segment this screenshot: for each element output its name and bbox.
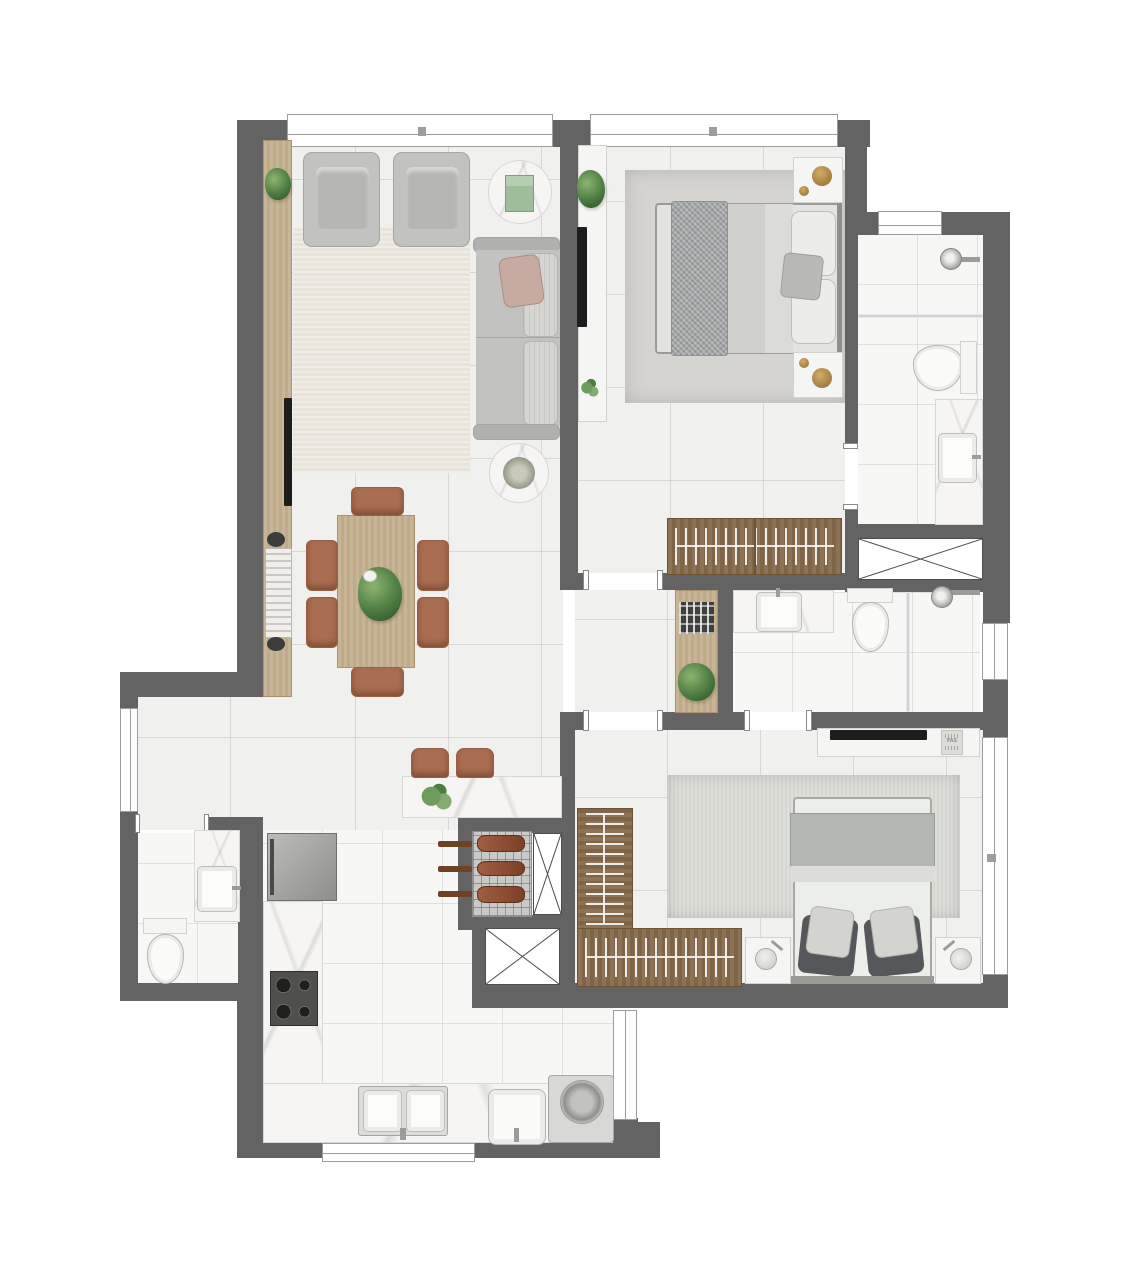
suite-bath-window (878, 211, 942, 235)
skewer-meat (477, 835, 525, 852)
plant (265, 168, 291, 200)
ventilation-shaft (858, 538, 983, 580)
living-rug (293, 228, 470, 473)
suite-door-jamb (583, 570, 589, 590)
green-book (505, 175, 534, 212)
counter-flowers (418, 781, 462, 815)
decor-bowl (267, 637, 285, 651)
shower-arm (950, 590, 980, 595)
armchair (393, 152, 470, 247)
book-stack (265, 548, 292, 638)
entry-floor (138, 697, 263, 830)
dining-chair (417, 540, 449, 591)
wall (472, 985, 575, 1008)
wall (983, 212, 1010, 623)
washbasin (197, 866, 237, 912)
sink-bowl (363, 1090, 402, 1132)
sideboard-decor-bar (284, 398, 292, 506)
suite-window (590, 114, 838, 147)
wall (560, 730, 575, 1008)
skewer-handle (438, 841, 472, 847)
skewer-meat (477, 886, 525, 903)
skewer-handle (438, 891, 472, 897)
suite-wardrobe (667, 518, 842, 575)
faucet (400, 1128, 406, 1140)
shower-head (940, 248, 962, 270)
living-window (287, 114, 553, 147)
skewer-meat (477, 861, 525, 876)
nightstand-decor (812, 368, 832, 388)
suite-bath-door-jamb (843, 443, 858, 449)
wall (238, 817, 263, 1001)
nightstand-decor (812, 166, 832, 186)
wall (845, 212, 878, 235)
plant (678, 663, 715, 701)
suite-bed-sheet (728, 204, 765, 353)
bedroom2-window (982, 737, 1008, 975)
nightstand-decor (799, 186, 809, 196)
plant (577, 170, 605, 208)
suite-bed-throw (671, 201, 728, 356)
bedroom2-blanket (790, 813, 935, 867)
sofa-armrest (473, 424, 560, 440)
wall (845, 507, 858, 580)
bathroom2-window (982, 623, 1008, 680)
floor-plan: FAS (0, 0, 1127, 1280)
dining-chair (417, 597, 449, 648)
dining-chair (351, 487, 404, 516)
ventilation-shaft (533, 833, 562, 915)
coffee-table (489, 443, 549, 503)
refrigerator (267, 833, 337, 901)
bedroom2-headboard (791, 976, 934, 984)
bedroom2-closet-horizontal (577, 928, 742, 987)
washbasin (756, 592, 802, 632)
dining-chair (306, 540, 338, 591)
bedroom2-sheet-fold (790, 866, 935, 882)
bar-stool (456, 748, 494, 778)
wall (845, 233, 858, 446)
sofa-back-cushion (523, 341, 558, 425)
shower-head (931, 586, 953, 608)
faucet (514, 1128, 519, 1142)
bedroom2-closet-vertical (577, 808, 633, 930)
wall (845, 120, 867, 215)
brand-stamp: FAS (941, 730, 963, 755)
sink-bowl (406, 1090, 445, 1132)
bedroom2-pillow-light (869, 905, 919, 959)
bedroom2-tv (830, 730, 927, 740)
panel-decor (580, 376, 603, 402)
wall (658, 573, 845, 590)
bathroom2-door-jamb (806, 710, 812, 731)
wall (120, 983, 240, 1001)
nightstand-decor (799, 358, 809, 368)
laundry-window (613, 1010, 637, 1120)
bedroom2-door-jamb (657, 710, 663, 731)
suite-shower-glass (858, 314, 983, 318)
dining-chair (351, 667, 404, 697)
bedroom2-door-jamb (583, 710, 589, 731)
toilet-tank (143, 918, 187, 934)
washing-machine (548, 1075, 614, 1143)
wall (458, 818, 472, 930)
powder-door-jamb (135, 814, 140, 833)
skewer-handle (438, 866, 472, 872)
kitchen-window (322, 1143, 475, 1162)
wall (718, 590, 733, 730)
bar-stool (411, 748, 449, 778)
wall (120, 833, 138, 983)
brand-stamp-text: FAS (947, 738, 957, 744)
armchair (303, 152, 380, 247)
centerpiece-bowl (363, 570, 377, 582)
toilet-tank (960, 341, 977, 394)
bathroom2-shower-glass (906, 592, 910, 712)
faucet (776, 588, 780, 597)
wall (472, 930, 485, 985)
wall (237, 120, 263, 697)
wall (237, 1001, 263, 1143)
suite-headboard (837, 201, 842, 356)
hall-shelf-decor (679, 602, 714, 634)
entry-side-window (120, 708, 138, 812)
bedroom2-pillow-light (805, 905, 855, 959)
wall (613, 1118, 638, 1145)
blush-pillow (498, 253, 546, 308)
faucet (232, 886, 241, 890)
dining-chair (306, 597, 338, 648)
bathroom2-door-jamb (744, 710, 750, 731)
cooktop (270, 971, 318, 1026)
wall (845, 524, 983, 538)
decor-bowl (267, 532, 285, 547)
ventilation-shaft (485, 928, 560, 985)
wall (552, 120, 590, 147)
toilet-tank (847, 588, 893, 603)
suite-tv (577, 227, 587, 327)
suite-door-jamb (657, 570, 663, 590)
wall (120, 672, 247, 697)
suite-accent-pillow (780, 252, 824, 301)
suite-bath-door-jamb (843, 504, 858, 510)
wall (658, 712, 747, 730)
wall (560, 147, 578, 573)
wall (237, 1143, 322, 1158)
faucet (972, 455, 981, 459)
